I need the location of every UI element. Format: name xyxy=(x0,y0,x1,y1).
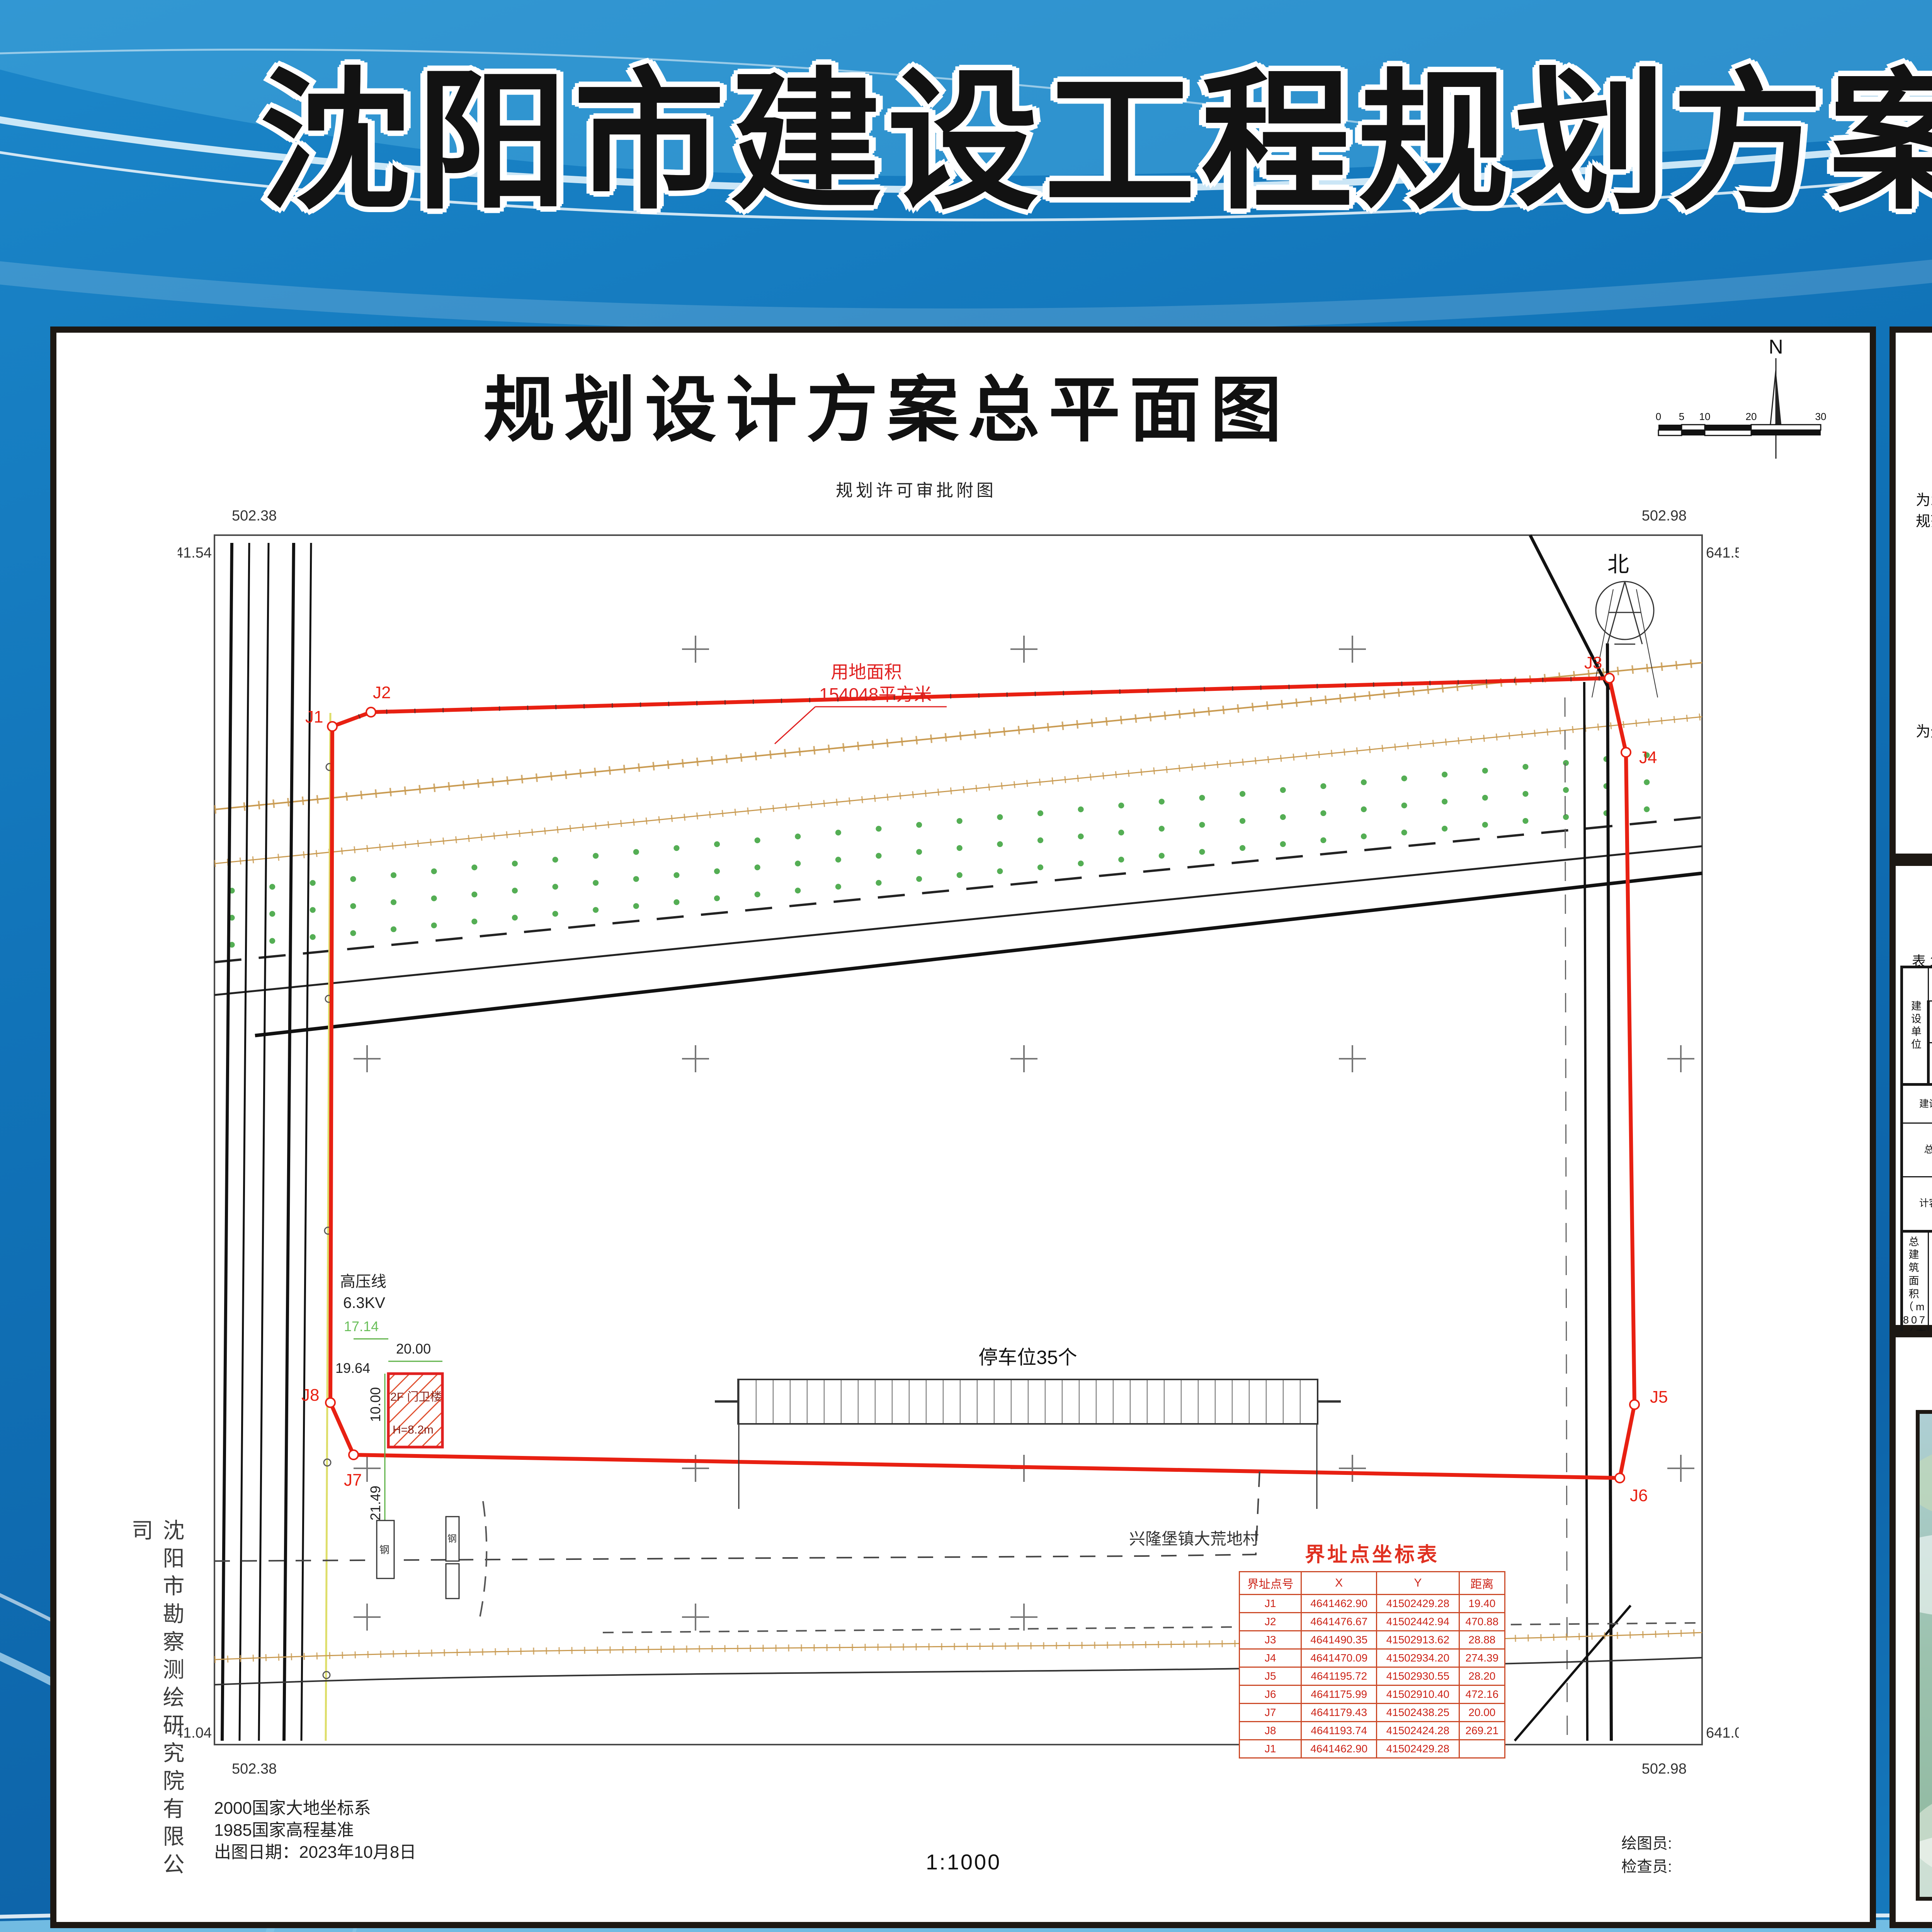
svg-text:钢: 钢 xyxy=(447,1534,457,1544)
point-id: J4 xyxy=(1240,1649,1301,1667)
svg-text:钢: 钢 xyxy=(379,1544,389,1556)
notice-paragraph: ③电子邮箱:zrzybgs-xms@shenyang.gov.cn xyxy=(1916,677,1932,698)
svg-text:J6: J6 xyxy=(1630,1486,1648,1505)
coord-header: 距离 xyxy=(1459,1572,1505,1595)
indicators-panel: 建设项目经济技术指标统计表 填表日期： 2023 年 09 月 11 日 表 1… xyxy=(1889,860,1932,1331)
svg-text:J4: J4 xyxy=(1639,748,1657,767)
notice-paragraph: 建设单位：沈阳信昌粮食贸易有限公司 15524052199； xyxy=(1916,606,1932,627)
svg-text:6.3KV: 6.3KV xyxy=(343,1294,385,1311)
indicators-title: 建设项目经济技术指标统计表 xyxy=(1896,874,1932,930)
cell-cap-label: 计容建筑面积（m²） xyxy=(1902,1177,1932,1231)
table-row: J14641462.9041502429.2819.40 xyxy=(1240,1595,1505,1613)
notice-title: 公示信息 xyxy=(1896,347,1932,399)
notice-paragraph: 设计单位：中地设计集团有限公司 15609879585。 xyxy=(1916,629,1932,651)
svg-text:502.98: 502.98 xyxy=(1642,508,1687,524)
svg-text:502.38: 502.38 xyxy=(232,1761,277,1777)
svg-text:J1: J1 xyxy=(305,707,323,726)
coord-header: X xyxy=(1301,1572,1377,1595)
cell-total-label: 总建筑面积（m²） xyxy=(1902,1123,1932,1177)
svg-text:J8: J8 xyxy=(301,1386,319,1405)
point-id: J3 xyxy=(1240,1631,1301,1649)
notice-subtitle-line2: 农业产业园三期项目—第一批建设内容规划许可批前公示 xyxy=(1896,432,1932,465)
svg-text:641.54: 641.54 xyxy=(1706,545,1739,561)
notice-paragraph: 4.本方案涉及的利害关系人依法享有听证权。 xyxy=(1916,745,1932,766)
notice-paragraph: 1.公示收集意见日期:2023年10月17日-2023年10月25日 xyxy=(1916,535,1932,556)
cell-devcert-label: 开发资质证 xyxy=(1928,1043,1932,1085)
survey-company-name: 沈阳市勘察测绘研究院有限公司 xyxy=(158,1519,188,1898)
birdseye-image-frame xyxy=(1916,1410,1932,1901)
notice-paragraph: 2.利害关系人可在公示有效期内通过以下途径咨询或提出意见 xyxy=(1916,558,1932,580)
north-label: N xyxy=(1769,336,1783,358)
notice-paragraph: ①咨询电话：审批部门：新民市自然资源局 024-87506038； xyxy=(1916,582,1932,603)
svg-text:21.49: 21.49 xyxy=(367,1486,383,1520)
svg-text:2F 门卫楼: 2F 门卫楼 xyxy=(390,1391,442,1403)
plan-title: 规划设计方案总平面图 xyxy=(56,352,1718,456)
north-cn-label: 北 xyxy=(1607,552,1629,577)
point-id: J2 xyxy=(1240,1613,1301,1631)
point-id: J8 xyxy=(1240,1722,1301,1740)
table-row: J14641462.9041502429.28 xyxy=(1240,1740,1505,1758)
notice-paragraph: 3.反馈意见请注明联系人真实姓名、电话、地址等信息;如因信息不完全或不真实导致无… xyxy=(1916,700,1932,743)
point-id: J1 xyxy=(1240,1740,1301,1758)
svg-text:J5: J5 xyxy=(1650,1388,1668,1406)
point-id: J6 xyxy=(1240,1685,1301,1704)
cell-upg-label: 地上建筑面积（m²） xyxy=(1928,1231,1932,1333)
cell-unit-header: 建设单位 xyxy=(1902,967,1929,1085)
svg-text:J7: J7 xyxy=(344,1471,362,1490)
plan-notes: 2000国家大地坐标系 1985国家高程基准 出图日期：2023年10月8日 xyxy=(214,1797,416,1864)
table-row: J24641476.6741502442.94470.88 xyxy=(1240,1613,1505,1631)
notice-paragraph: ②信函邮寄至:新民市政务服务中心南环东路21号，新民市自然资源局规划审批科。 xyxy=(1916,653,1932,674)
scale-tick: 30 xyxy=(1815,411,1827,422)
drawing-credits: 绘图员: 检查员: xyxy=(1621,1832,1672,1878)
cell-land-label: 建设用地面积（m²） xyxy=(1902,1085,1932,1123)
notice-panel: 公示信息 沈阳信昌粮食贸易有限公司投资建设的十月稻田 农业产业园三期项目—第一批… xyxy=(1889,327,1932,860)
svg-text:17.14: 17.14 xyxy=(344,1318,379,1334)
svg-text:高压线: 高压线 xyxy=(340,1273,386,1290)
coord-header: 界址点号 xyxy=(1240,1572,1301,1595)
svg-text:H=8.2m: H=8.2m xyxy=(393,1423,434,1436)
parking-label: 停车位35个 xyxy=(978,1347,1077,1368)
scale-tick: 10 xyxy=(1699,411,1711,422)
table-row: J84641193.7441502424.28269.21 xyxy=(1240,1722,1505,1740)
coordinate-table: 界址点号 X Y 距离 J14641462.9041502429.2819.40… xyxy=(1239,1571,1505,1759)
svg-text:20.00: 20.00 xyxy=(396,1341,431,1357)
plan-panel: 规划设计方案总平面图 规划许可审批附图 N 0 5 10 20 30 xyxy=(50,327,1876,1928)
scale-tick: 0 xyxy=(1656,411,1661,422)
svg-text:154048平方米: 154048平方米 xyxy=(819,684,932,704)
table-row: J74641179.4341502438.2520.00 xyxy=(1240,1704,1505,1722)
table-row: J34641490.3541502913.6228.88 xyxy=(1240,1631,1505,1649)
birdseye-panel: 鸟瞰图 xyxy=(1889,1331,1932,1928)
birdseye-title: 鸟瞰图 xyxy=(1896,1348,1932,1407)
svg-text:J3: J3 xyxy=(1584,653,1602,672)
table-row: J54641195.7241502930.5528.20 xyxy=(1240,1667,1505,1685)
point-id: J5 xyxy=(1240,1667,1301,1685)
svg-text:J2: J2 xyxy=(373,683,391,702)
svg-text:502.38: 502.38 xyxy=(232,508,277,524)
coordinate-table-box: 界址点坐标表 界址点号 X Y 距离 J14641462.9041502429.… xyxy=(1239,1538,1505,1759)
coord-header: Y xyxy=(1376,1572,1459,1595)
notice-subtitle-line1: 沈阳信昌粮食贸易有限公司投资建设的十月稻田 xyxy=(1896,401,1932,434)
cell-name-label: 名称（公章） xyxy=(1928,967,1932,1001)
notice-body: 沈阳信昌粮食贸易有限公司投资建设的十月稻田农业产业园三期项目—第一批建设内容规划… xyxy=(1916,469,1932,769)
scale-text: 1:1000 xyxy=(926,1849,1001,1874)
notice-paragraph: 沈阳信昌粮食贸易有限公司投资建设的十月稻田农业产业园三期项目—第一批建设内容规划… xyxy=(1916,469,1932,532)
svg-text:用地面积: 用地面积 xyxy=(831,662,902,682)
point-id: J7 xyxy=(1240,1704,1301,1722)
table-row: J44641470.0941502934.20274.39 xyxy=(1240,1649,1505,1667)
svg-text:10.00: 10.00 xyxy=(367,1387,383,1422)
birdseye-rendering xyxy=(1920,1414,1932,1897)
point-id: J1 xyxy=(1240,1595,1301,1613)
svg-text:502.98: 502.98 xyxy=(1642,1761,1687,1777)
cell-addr-label: 项目地址 xyxy=(1928,1001,1932,1043)
coordinate-table-title: 界址点坐标表 xyxy=(1239,1538,1505,1567)
table-row: J64641175.9941502910.40472.16 xyxy=(1240,1685,1505,1704)
scale-tick: 5 xyxy=(1679,411,1684,422)
board-title: 沈阳市建设工程规划方案公示板 xyxy=(0,21,1932,264)
notice-board: 沈阳市建设工程规划方案公示板 规划设计方案总平面图 规划许可审批附图 N 0 5… xyxy=(0,0,1932,1932)
svg-text:641.54: 641.54 xyxy=(178,545,212,561)
scale-bar: 0 5 10 20 30 xyxy=(1651,410,1837,445)
gatehouse: 2F 门卫楼 H=8.2m xyxy=(388,1374,442,1447)
svg-text:641.04: 641.04 xyxy=(1706,1725,1739,1741)
scale-tick: 20 xyxy=(1746,411,1757,422)
svg-text:19.64: 19.64 xyxy=(335,1360,370,1376)
